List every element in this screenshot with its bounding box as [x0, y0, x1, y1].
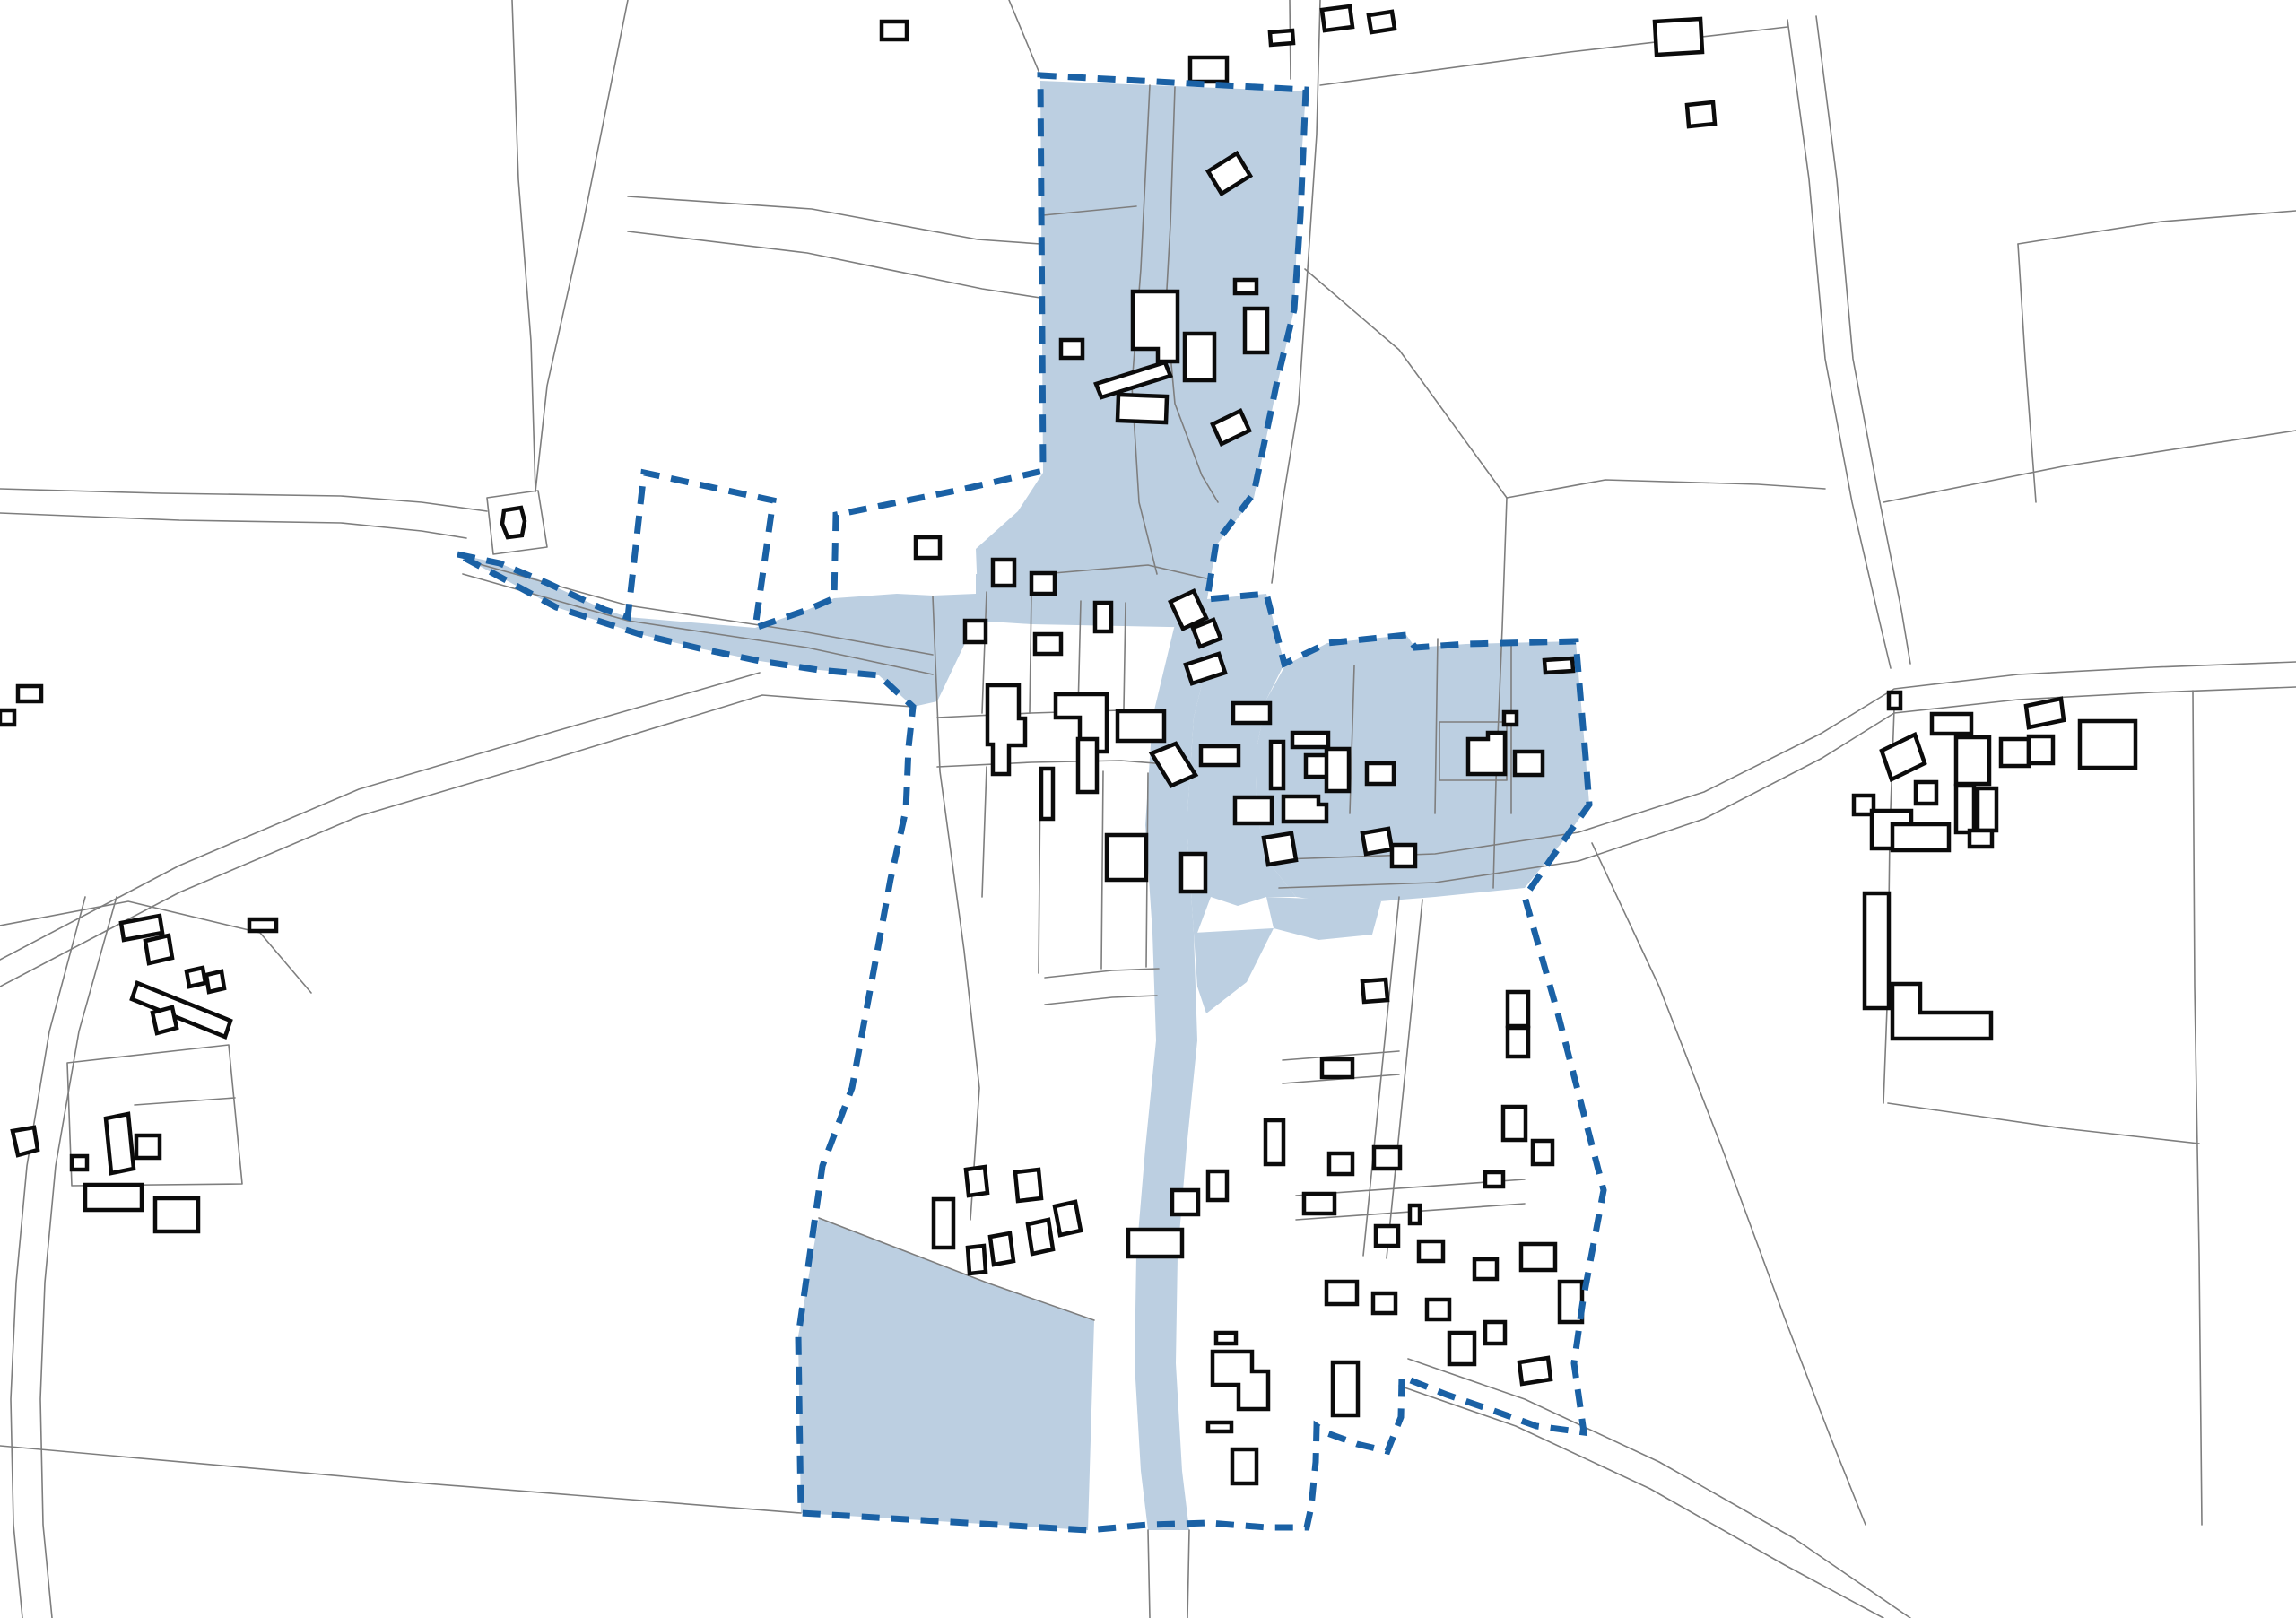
zone-area	[457, 554, 976, 707]
parcel-line	[1045, 969, 1159, 978]
parcel-line	[512, 0, 535, 491]
building-footprint	[1468, 733, 1505, 774]
parcel-line	[1883, 431, 2296, 502]
building-footprint	[1172, 1190, 1198, 1214]
building-footprint	[1245, 309, 1267, 352]
parcel-line	[1399, 1386, 1883, 1618]
parcel-line	[982, 767, 987, 897]
building-footprint	[1485, 1172, 1503, 1187]
building-footprint	[1326, 1282, 1357, 1304]
building-footprint	[1213, 1352, 1268, 1409]
parcel-line	[0, 513, 466, 538]
building-footprint	[206, 971, 224, 992]
building-footprint	[1956, 737, 1989, 784]
building-footprint	[934, 1199, 953, 1248]
building-footprint	[1216, 1333, 1236, 1344]
building-footprint	[1265, 1120, 1283, 1164]
parcel-line	[1009, 0, 1040, 75]
building-footprint	[1374, 1147, 1400, 1169]
building-footprint	[2026, 699, 2064, 727]
building-footprint	[1329, 1153, 1352, 1174]
parcel-line	[40, 897, 117, 1618]
building-footprint	[916, 537, 940, 558]
building-footprint	[1369, 12, 1395, 32]
parcel-line	[535, 0, 628, 491]
building-footprint	[152, 1007, 177, 1033]
building-footprint	[155, 1198, 198, 1231]
building-footprint	[1503, 1107, 1526, 1140]
building-footprint	[1333, 1362, 1358, 1415]
building-footprint	[1185, 334, 1214, 380]
building-footprint	[1128, 1230, 1182, 1257]
parcel-line	[2018, 244, 2036, 502]
building-footprint	[1865, 893, 1889, 1008]
building-footprint	[1392, 845, 1415, 866]
parcel-line	[1101, 771, 1103, 969]
parcel-line	[2018, 211, 2296, 244]
building-footprint	[72, 1156, 87, 1170]
parcel-line	[1408, 1359, 1910, 1618]
building-footprint	[1508, 992, 1528, 1026]
building-footprint	[1376, 1226, 1398, 1246]
building-footprint	[1882, 735, 1925, 779]
building-footprint	[145, 935, 172, 963]
parcel-line	[0, 1446, 801, 1513]
building-footprint	[1410, 1205, 1420, 1223]
building-footprint	[1118, 395, 1167, 422]
building-footprint	[1326, 749, 1349, 791]
building-footprint	[1235, 280, 1257, 293]
building-footprint	[187, 968, 205, 987]
building-footprint	[85, 1185, 142, 1210]
building-footprint	[1232, 1449, 1257, 1483]
building-footprint	[1095, 603, 1111, 631]
building-footprint	[1521, 1244, 1555, 1270]
building-footprint	[1181, 854, 1205, 892]
building-footprint	[502, 508, 525, 537]
building-footprint	[2001, 739, 2029, 766]
building-footprint	[1367, 763, 1394, 784]
map-svg	[0, 0, 2296, 1618]
zone-area	[1266, 897, 1381, 940]
building-footprint	[966, 1167, 987, 1196]
building-footprint	[0, 710, 14, 725]
building-footprint	[1055, 1202, 1081, 1235]
building-footprint	[1892, 984, 1991, 1039]
building-footprint	[18, 686, 41, 701]
building-footprint	[1201, 746, 1239, 765]
zone-area	[1194, 928, 1274, 1013]
map-canvas	[0, 0, 2296, 1618]
building-footprint	[1504, 712, 1517, 725]
building-footprint	[1292, 733, 1328, 747]
building-footprint	[1427, 1300, 1449, 1319]
building-footprint	[2080, 721, 2135, 768]
building-footprint	[1235, 797, 1272, 823]
building-footprint	[1508, 1028, 1528, 1057]
building-footprint	[136, 1135, 160, 1158]
building-footprint	[1233, 703, 1270, 723]
building-footprint	[1892, 824, 1949, 850]
building-footprint	[965, 621, 986, 642]
building-footprint	[1031, 573, 1055, 594]
building-footprint	[1916, 782, 1936, 804]
building-footprint	[1956, 786, 1974, 832]
building-footprint	[1270, 30, 1293, 45]
building-footprint	[1322, 6, 1352, 30]
building-footprint	[1474, 1259, 1497, 1279]
parcel-line	[937, 761, 1166, 767]
parcel-line	[1148, 1530, 1150, 1618]
parcel-line	[1187, 1530, 1189, 1618]
building-footprint	[1304, 1194, 1335, 1213]
building-footprint	[1118, 711, 1164, 741]
parcel-line	[628, 231, 1040, 298]
building-footprint	[1208, 1171, 1227, 1200]
building-footprint	[1515, 752, 1543, 775]
building-footprint	[993, 560, 1014, 586]
building-footprint	[1687, 102, 1715, 126]
parcel-line	[11, 897, 85, 1618]
zone-area	[798, 1218, 1094, 1530]
building-footprint	[1283, 796, 1326, 822]
building-footprint	[1362, 829, 1392, 854]
building-footprint	[1970, 831, 1992, 847]
parcel-line	[67, 1045, 242, 1186]
parcel-line	[1305, 269, 1507, 498]
building-footprint	[1035, 634, 1061, 654]
parcel-line	[0, 695, 913, 987]
building-footprint	[106, 1114, 134, 1173]
parcel-line	[1592, 843, 1865, 1525]
building-footprint	[1107, 835, 1146, 880]
building-footprint	[968, 1246, 986, 1274]
building-footprint	[1190, 57, 1227, 82]
building-footprint	[1271, 742, 1283, 788]
building-footprint	[13, 1127, 38, 1155]
parcel-line	[2193, 691, 2202, 1525]
building-footprint	[987, 685, 1025, 774]
building-footprint	[1078, 739, 1097, 792]
building-footprint	[1978, 788, 1996, 831]
parcel-line	[1787, 20, 1891, 668]
parcel-line	[1888, 1103, 2199, 1144]
building-footprint	[1533, 1141, 1552, 1164]
building-footprint	[1419, 1241, 1443, 1261]
parcel-line	[0, 489, 487, 511]
building-footprint	[1519, 1358, 1551, 1384]
building-footprint	[1028, 1220, 1053, 1254]
building-footprint	[1449, 1333, 1474, 1364]
zone-fill-layer	[457, 81, 1589, 1530]
building-footprint	[2029, 736, 2053, 763]
building-footprint	[1061, 340, 1083, 358]
parcel-line	[1816, 16, 1910, 664]
building-footprint	[882, 22, 907, 39]
building-footprint	[1015, 1170, 1041, 1201]
building-footprint	[990, 1233, 1013, 1265]
building-footprint	[1264, 833, 1296, 865]
parcel-line	[135, 1098, 235, 1105]
building-footprint	[1041, 769, 1053, 819]
parcel-line	[1045, 996, 1157, 1005]
building-footprint	[1362, 979, 1387, 1002]
parcel-line	[628, 196, 1040, 244]
building-footprint	[249, 919, 276, 931]
building-footprint	[1889, 692, 1900, 709]
parcel-line	[1320, 27, 1787, 85]
building-footprint	[1544, 658, 1573, 673]
building-footprint	[1932, 714, 1971, 734]
building-footprint	[1208, 1422, 1231, 1431]
parcel-line	[0, 673, 760, 960]
building-footprint	[1373, 1293, 1396, 1313]
building-footprint	[1655, 19, 1702, 55]
building-footprint	[1485, 1322, 1505, 1344]
building-footprint	[1322, 1059, 1352, 1077]
parcel-line	[1507, 480, 1825, 498]
